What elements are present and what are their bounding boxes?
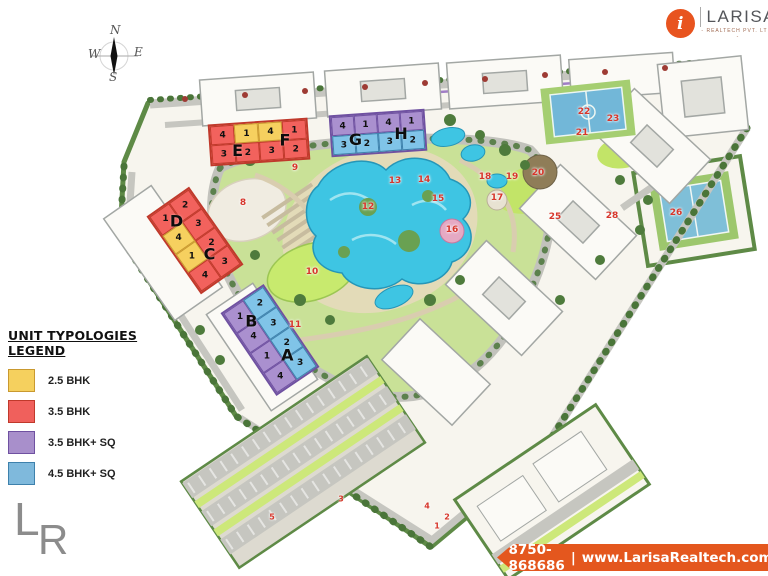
footer-separator: | bbox=[571, 550, 576, 566]
brand-logo-letter: i bbox=[677, 14, 683, 34]
legend-item: 2.5 BHK bbox=[8, 369, 183, 392]
legend-label: 4.5 BHK+ SQ bbox=[48, 468, 116, 480]
website-url: www.LarisaRealtech.com bbox=[582, 550, 768, 566]
map-marker-28: 28 bbox=[606, 211, 619, 221]
legend-swatch bbox=[8, 462, 35, 485]
watermark-monogram: L R bbox=[10, 492, 90, 572]
legend-swatch bbox=[8, 400, 35, 423]
legend-swatch bbox=[8, 369, 35, 392]
legend-label: 3.5 BHK+ SQ bbox=[48, 437, 116, 449]
compass-north-label: N bbox=[110, 23, 121, 37]
map-marker-8: 8 bbox=[240, 198, 246, 208]
brand-tagline: - REALTECH PVT. LTD. - bbox=[700, 28, 768, 40]
compass-west-label: W bbox=[88, 47, 100, 61]
brand-logo: i LARISA - REALTECH PVT. LTD. - bbox=[666, 7, 768, 40]
brand-text: LARISA - REALTECH PVT. LTD. - bbox=[700, 7, 768, 40]
map-marker-21: 21 bbox=[576, 128, 589, 138]
legend-item: 3.5 BHK bbox=[8, 400, 183, 423]
map-marker-12: 12 bbox=[362, 202, 375, 212]
footer-ribbon: 8750-868686 | www.LarisaRealtech.com bbox=[497, 544, 768, 571]
legend-title: UNIT TYPOLOGIES LEGEND bbox=[8, 328, 183, 358]
map-marker-15: 15 bbox=[432, 194, 445, 204]
map-marker-14: 14 bbox=[418, 175, 431, 185]
map-marker-19: 19 bbox=[506, 172, 519, 182]
legend-items: 2.5 BHK3.5 BHK3.5 BHK+ SQ4.5 BHK+ SQ bbox=[8, 369, 183, 485]
map-marker-10: 10 bbox=[306, 267, 319, 277]
map-marker-11: 11 bbox=[289, 320, 302, 330]
legend-swatch bbox=[8, 431, 35, 454]
legend-label: 3.5 BHK bbox=[48, 406, 90, 418]
map-marker-2: 2 bbox=[444, 513, 450, 522]
map-marker-3: 3 bbox=[338, 495, 344, 504]
map-marker-18: 18 bbox=[479, 172, 492, 182]
map-marker-1: 1 bbox=[434, 522, 440, 531]
map-marker-5: 5 bbox=[269, 513, 275, 522]
brand-name: LARISA bbox=[700, 7, 768, 27]
legend-item: 4.5 BHK+ SQ bbox=[8, 462, 183, 485]
watermark-letter-r: R bbox=[38, 516, 68, 564]
map-marker-16: 16 bbox=[446, 225, 459, 235]
compass: N W E S bbox=[82, 26, 146, 88]
brand-logo-icon: i bbox=[666, 9, 695, 38]
map-marker-4: 4 bbox=[424, 502, 430, 511]
map-marker-9: 9 bbox=[292, 163, 298, 173]
map-marker-20: 20 bbox=[532, 168, 545, 178]
compass-east-label: E bbox=[134, 45, 143, 59]
map-marker-26: 26 bbox=[670, 208, 683, 218]
compass-south-label: S bbox=[109, 70, 117, 84]
phone-number: 8750-868686 bbox=[508, 542, 564, 574]
legend-label: 2.5 BHK bbox=[48, 375, 90, 387]
map-marker-17: 17 bbox=[491, 193, 504, 203]
map-marker-22: 22 bbox=[578, 107, 591, 117]
map-marker-23: 23 bbox=[607, 114, 620, 124]
unit-typologies-legend: UNIT TYPOLOGIES LEGEND 2.5 BHK3.5 BHK3.5… bbox=[8, 328, 183, 493]
map-marker-13: 13 bbox=[389, 176, 402, 186]
site-plan: 41413232EF41413232GH12431243DC12431243BA… bbox=[0, 0, 768, 576]
map-marker-25: 25 bbox=[549, 212, 562, 222]
watermark-letter-l: L bbox=[14, 492, 40, 546]
legend-item: 3.5 BHK+ SQ bbox=[8, 431, 183, 454]
